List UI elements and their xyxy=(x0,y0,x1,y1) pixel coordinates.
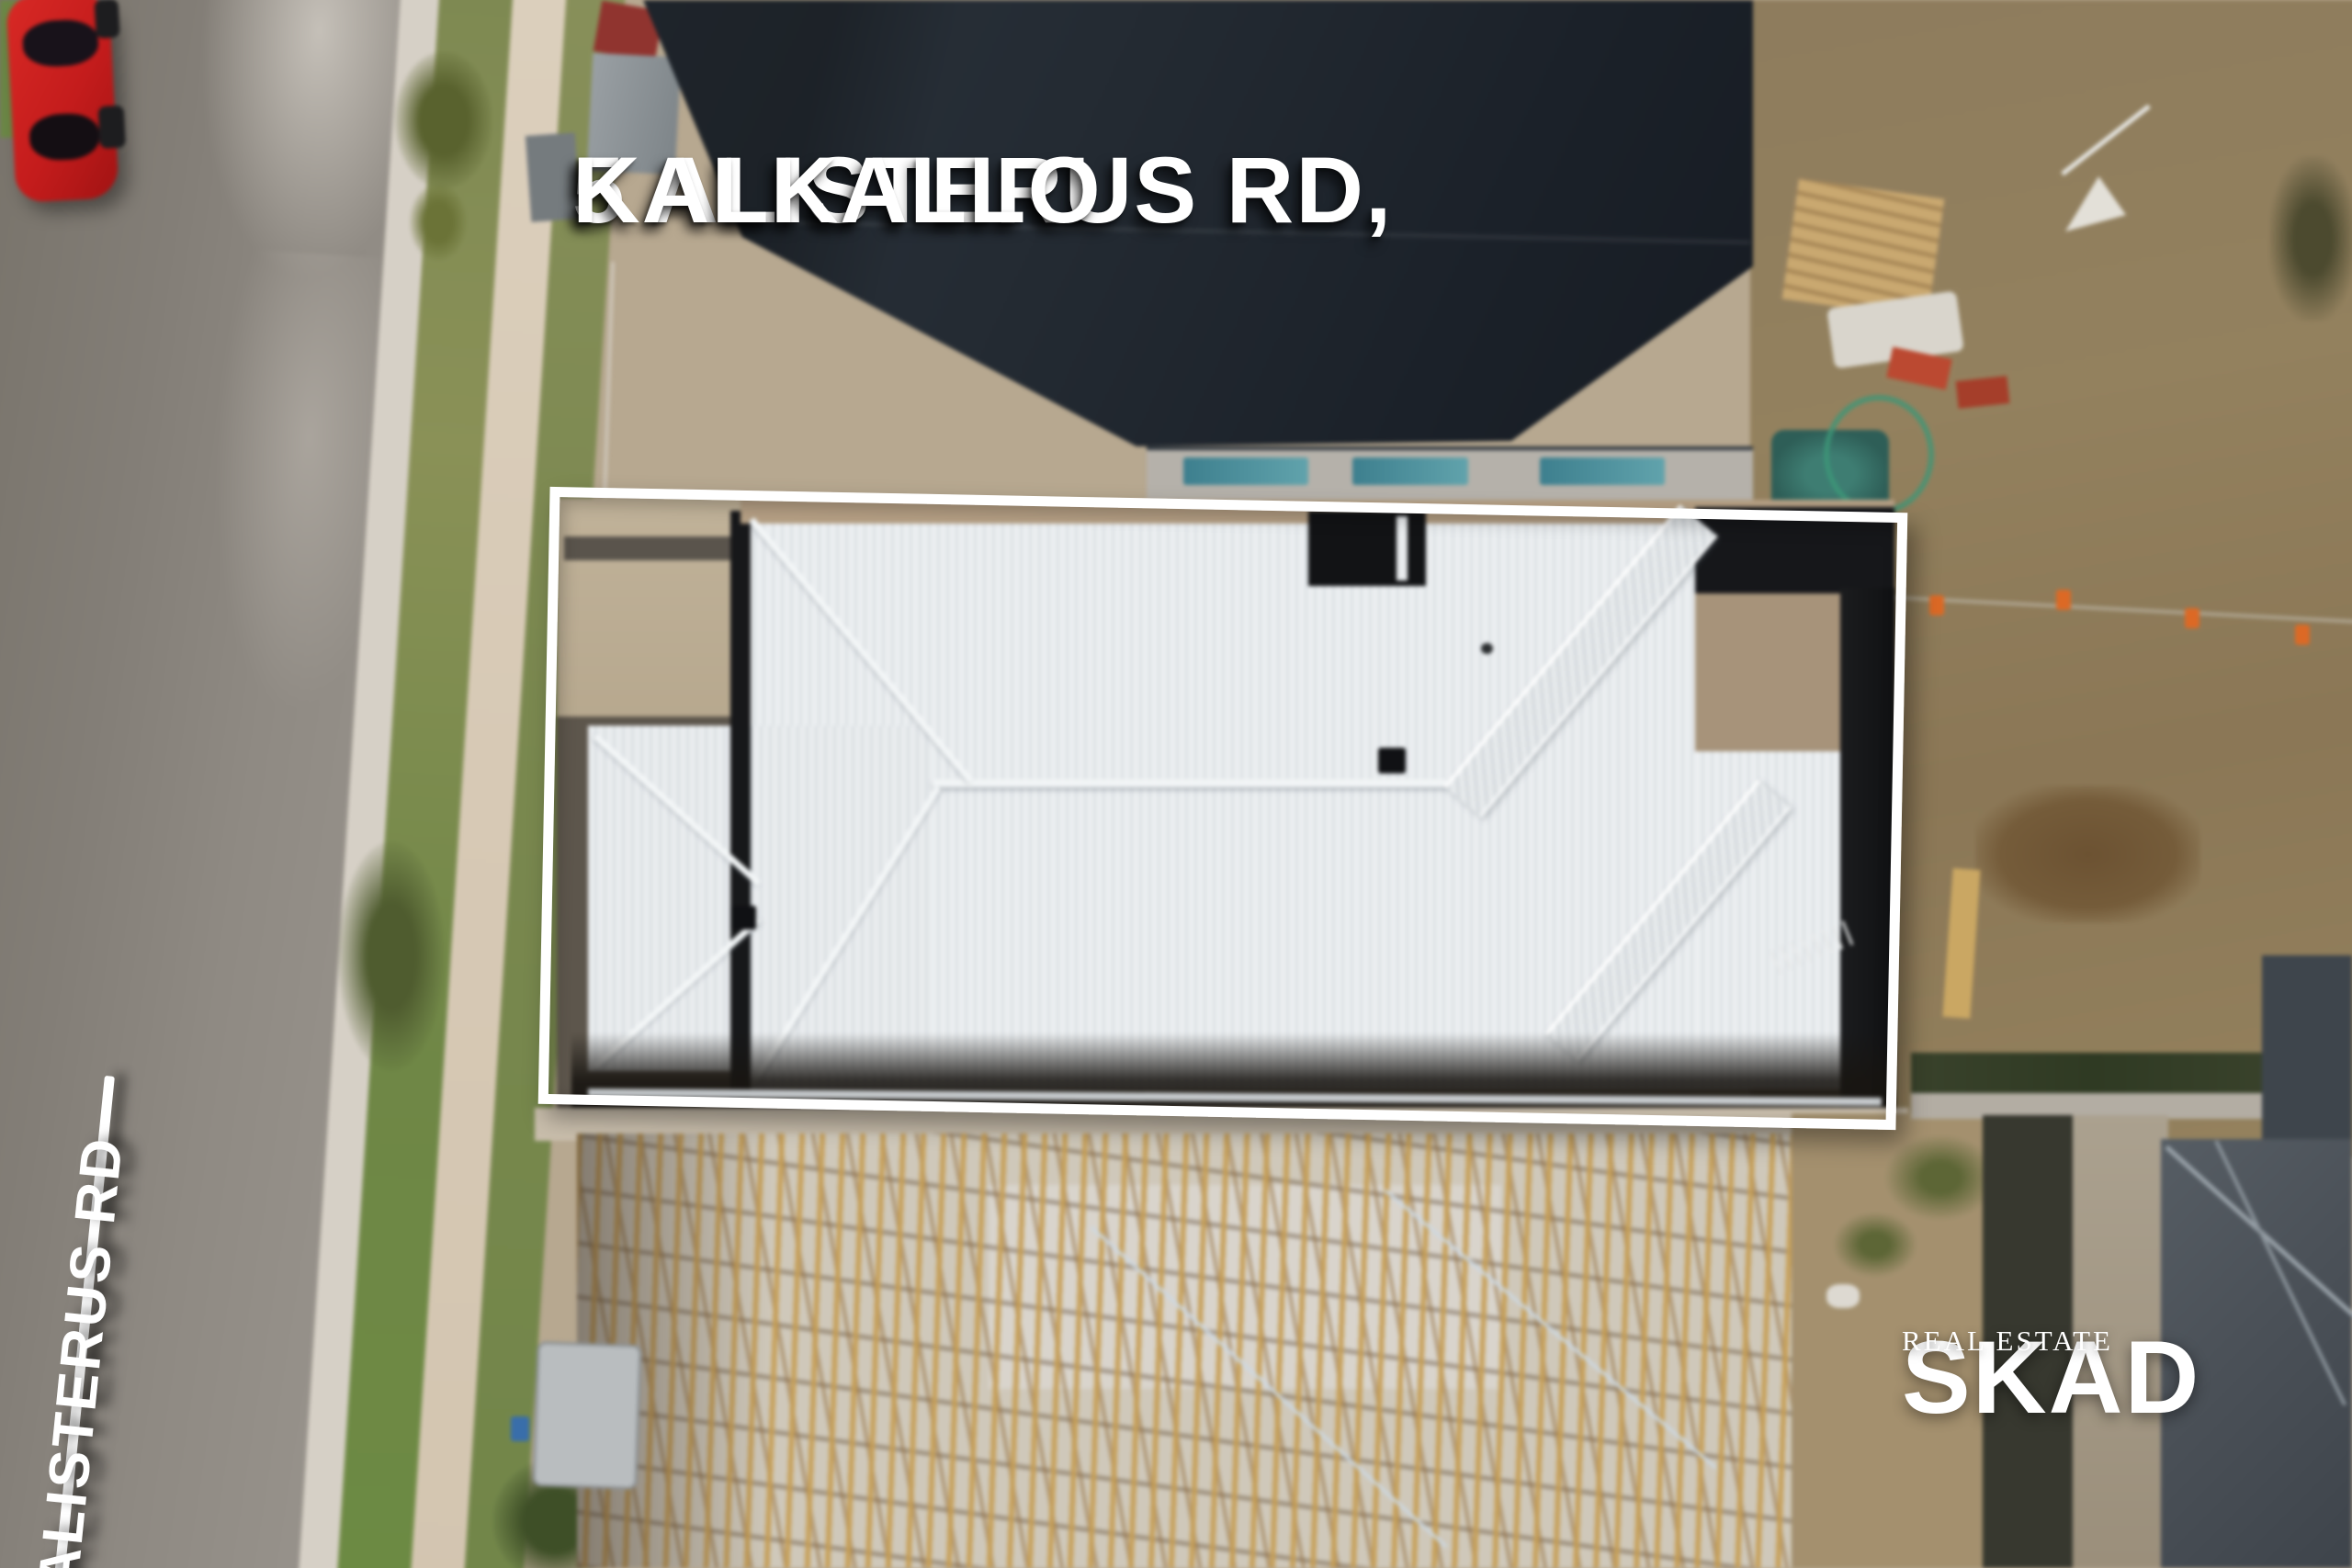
address-line-2: KALKALLO xyxy=(572,136,1102,245)
street-name-label: ALISTERUS RD xyxy=(3,0,275,1568)
property-boundary-outline xyxy=(538,487,1908,1130)
marketing-overlay-layer: 5 ALISTERUS RD, KALKALLO ALISTERUS RD SK… xyxy=(0,0,2352,1568)
real-estate-aerial-listing-image: 5 ALISTERUS RD, KALKALLO ALISTERUS RD SK… xyxy=(0,0,2352,1568)
street-label-text: ALISTERUS RD xyxy=(26,1133,136,1568)
logo-tagline-text: REAL ESTATE xyxy=(1902,1325,2113,1358)
